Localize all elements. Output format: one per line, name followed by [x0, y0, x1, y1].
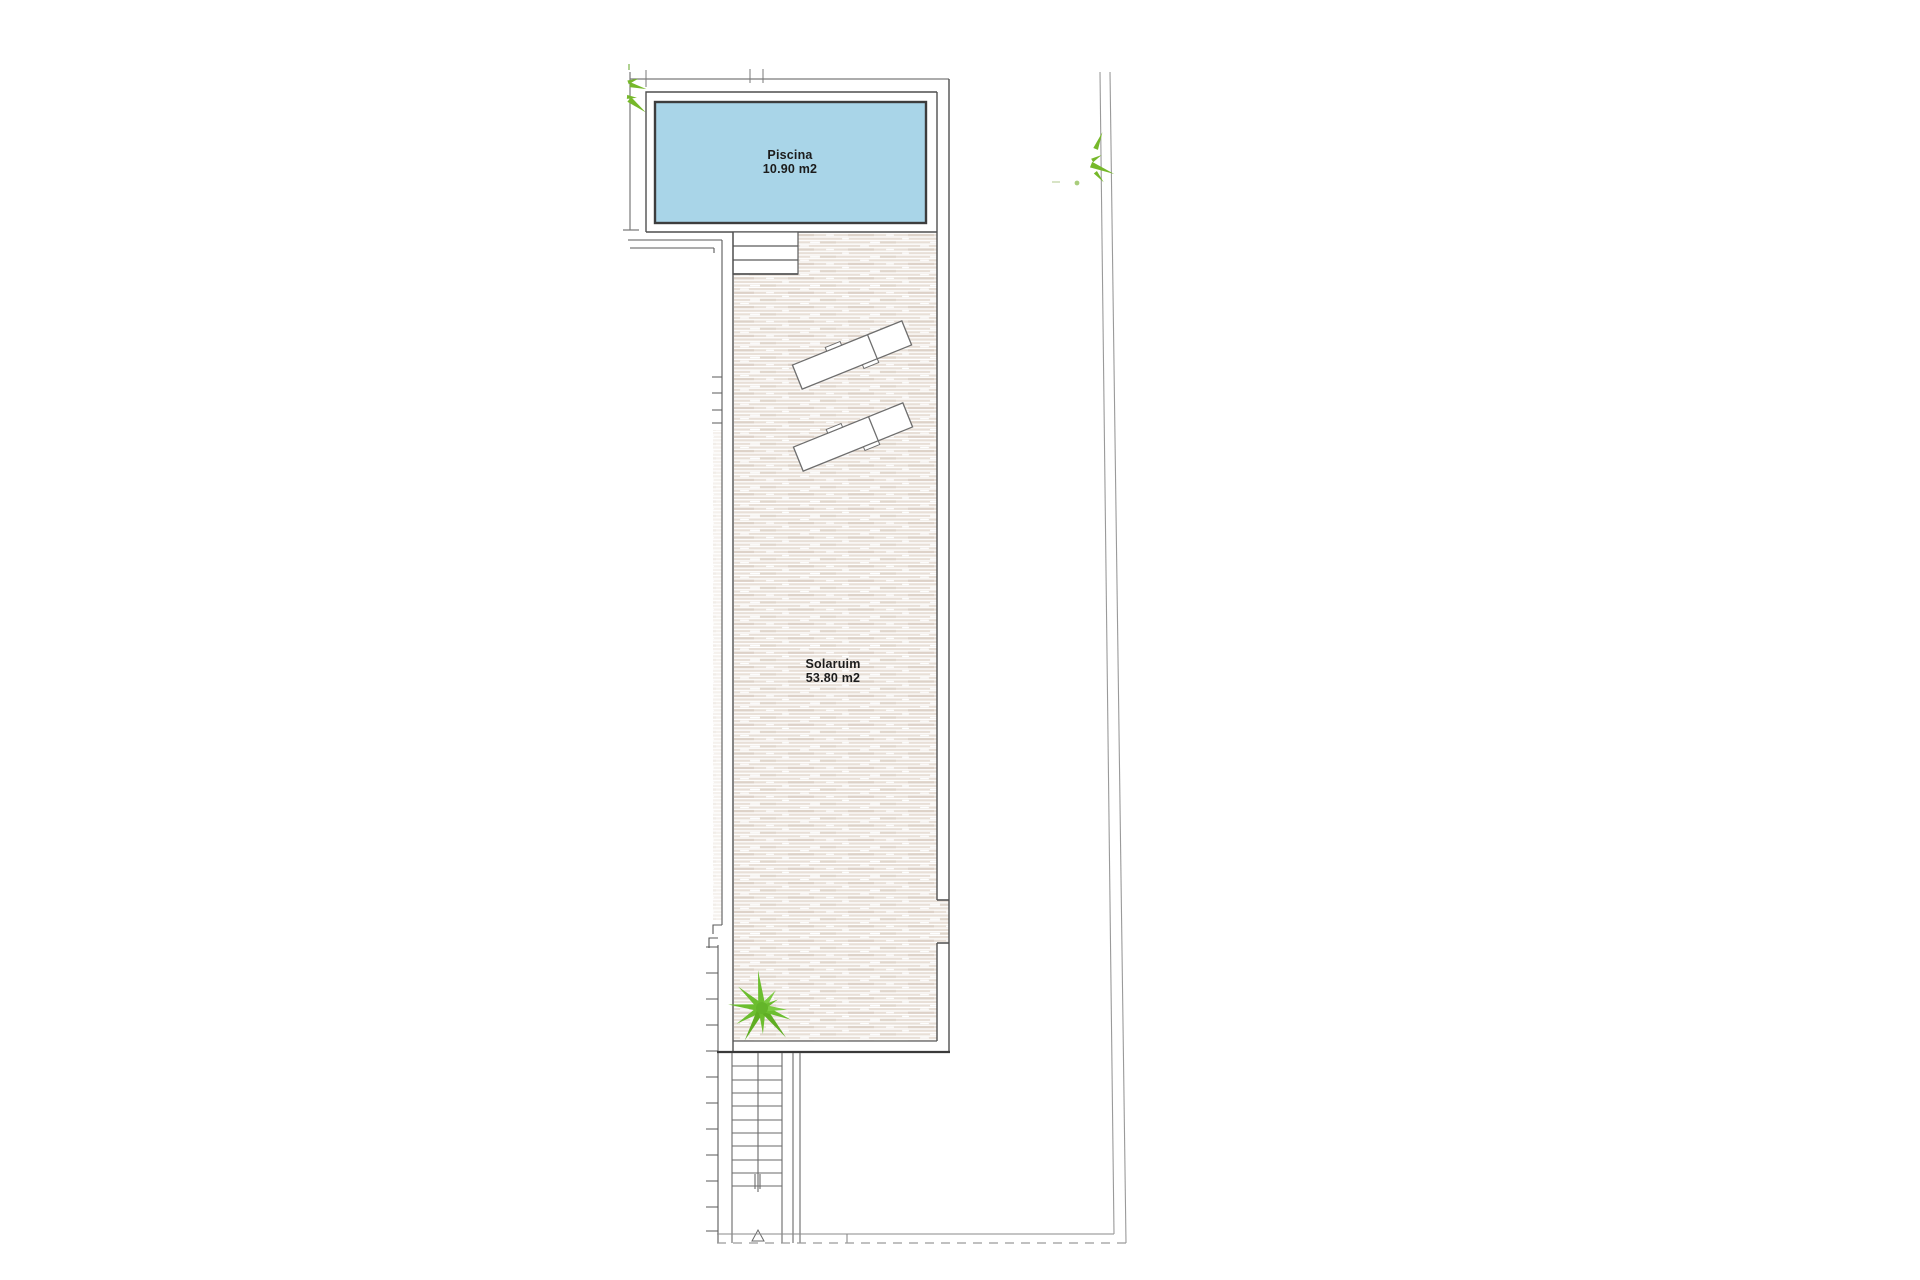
room-label-piscina: Piscina 10.90 m2 [690, 148, 890, 176]
floor-plan-drawing [0, 0, 1920, 1280]
pool-steps-icon [733, 232, 798, 274]
room-area: 53.80 m2 [733, 671, 933, 685]
stairs-icon [732, 1053, 800, 1243]
plot-bottom-lines [717, 1234, 1126, 1243]
shrub-icon [1052, 131, 1115, 185]
room-area: 10.90 m2 [690, 162, 890, 176]
left-side-walls [628, 240, 722, 1243]
room-name: Piscina [690, 148, 890, 162]
room-name: Solaruim [733, 657, 933, 671]
floor-plan: Piscina 10.90 m2 Solaruim 53.80 m2 [0, 0, 1920, 1280]
room-label-solarium: Solaruim 53.80 m2 [733, 657, 933, 685]
right-parcel-boundary [1100, 72, 1126, 1243]
